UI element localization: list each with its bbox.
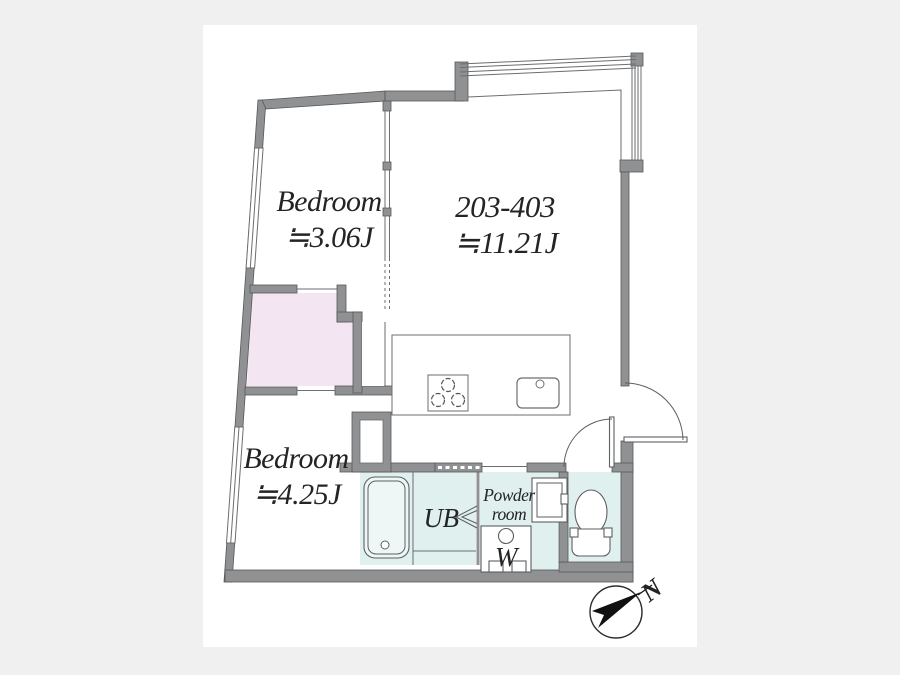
bedroom-lower-area: ≒4.25J (253, 478, 343, 511)
washer-label: W (495, 542, 520, 572)
powder-room-label-line2: room (492, 504, 526, 524)
faucet-icon (536, 380, 544, 388)
bathtub-drain-icon (381, 541, 389, 549)
toilet-bottom-wall (559, 562, 633, 572)
kitchen (392, 335, 570, 415)
partition-post-3 (383, 208, 391, 216)
storage-left-wall (353, 312, 362, 393)
window-stub-right (620, 160, 643, 172)
powder-room-label-line1: Powder (482, 485, 535, 505)
partition-post-1 (383, 101, 391, 111)
living-area-label: ≒11.21J (454, 225, 559, 260)
bath-label: UB (424, 503, 459, 533)
bedroom-lower-name: Bedroom (243, 442, 348, 475)
wet-area-top-wall-middle (527, 463, 566, 472)
toilet-door-leaf (610, 417, 615, 467)
bedroom-upper-area: ≒3.06J (285, 221, 375, 254)
floorplan-page: N Bedroom ≒3.06J 203-403 ≒11.21J Bedroom… (0, 0, 900, 675)
stove (428, 375, 468, 411)
pipe-space-inner (360, 420, 383, 463)
washbasin-handle (561, 494, 568, 504)
partition-post-2 (383, 162, 391, 170)
bedroom-lower-top-wall-left (245, 387, 297, 395)
outer-wall-right-upper (621, 172, 629, 386)
entrance-door-leaf (624, 437, 687, 442)
bedroom-lower-top-wall-right (335, 386, 393, 395)
closet-top-wall (250, 285, 297, 293)
living-unit-label: 203-403 (455, 189, 555, 224)
bath-top-vent-wall (435, 463, 482, 472)
outer-wall-right-lower (621, 441, 633, 582)
wet-area-top-wall-right (612, 463, 633, 472)
floorplan-svg: N Bedroom ≒3.06J 203-403 ≒11.21J Bedroom… (0, 0, 900, 675)
toilet-tank-tab-right (604, 528, 612, 537)
storage-inner (362, 322, 384, 386)
bedroom-upper-name: Bedroom (276, 185, 381, 218)
living-top-wall (385, 91, 463, 101)
toilet-tank-tab-left (570, 528, 578, 537)
toilet-bowl (575, 490, 607, 534)
